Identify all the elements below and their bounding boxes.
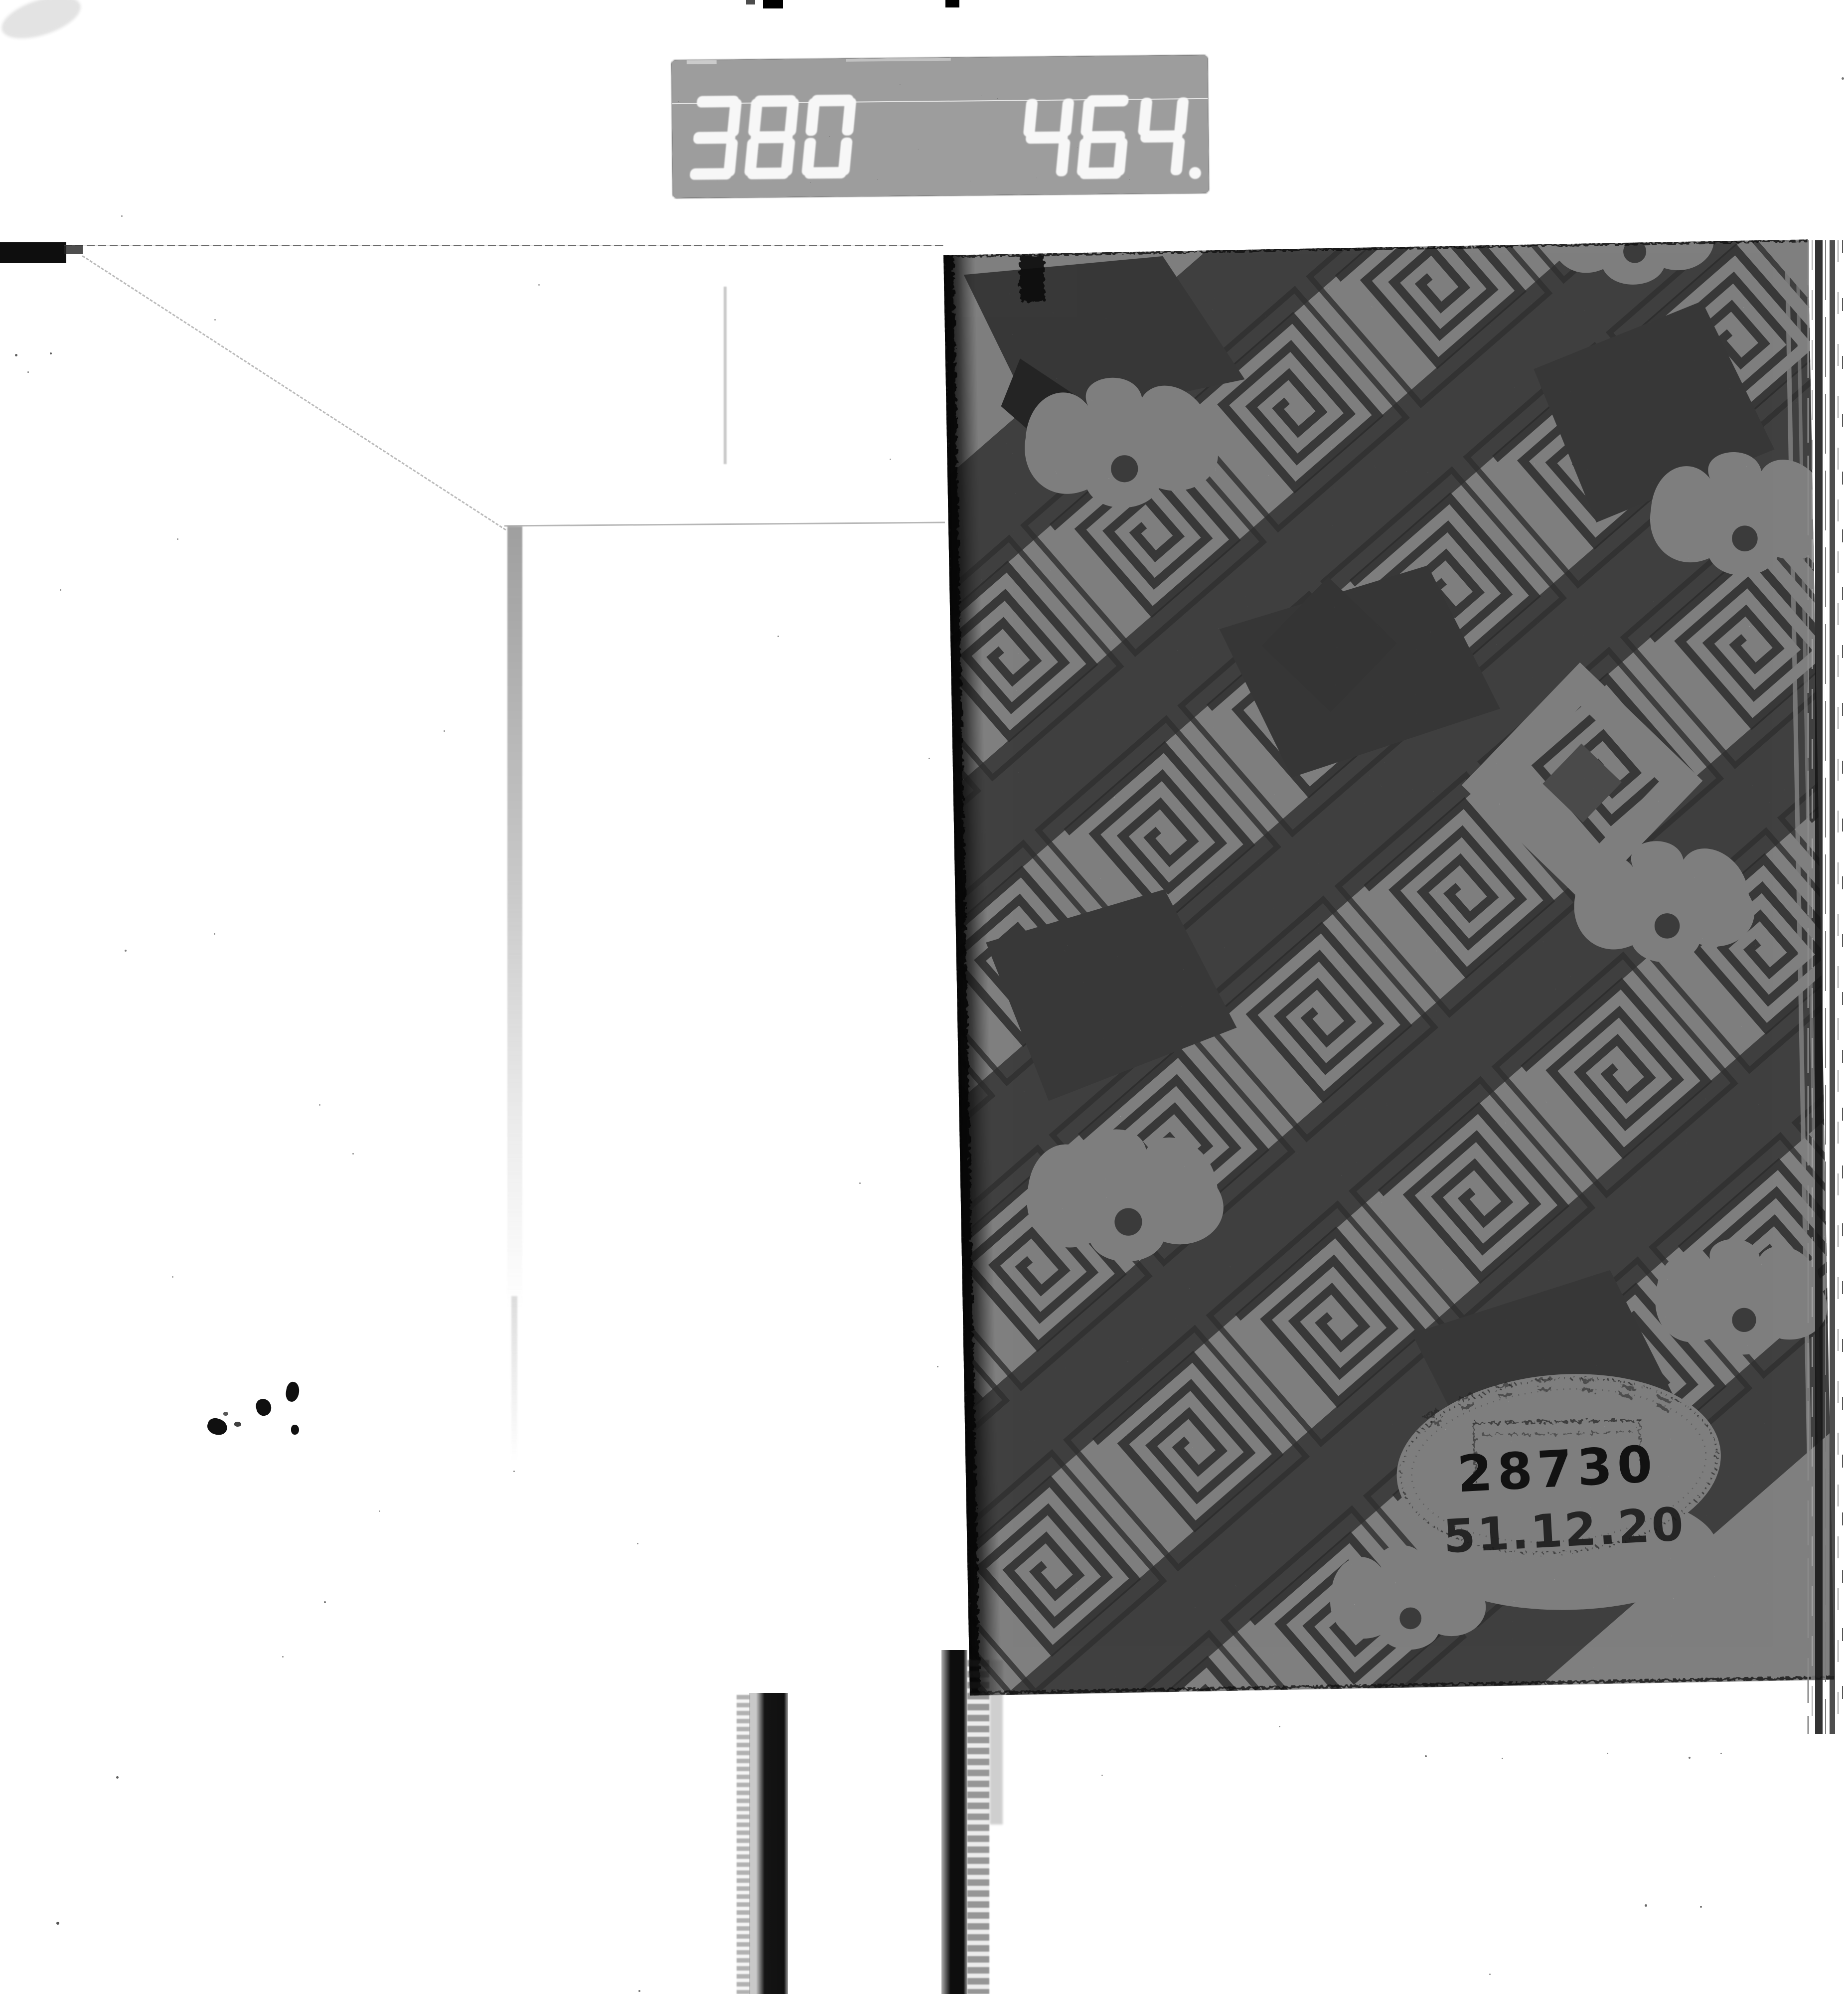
dust-speck — [15, 354, 17, 356]
counter-grain — [672, 55, 1209, 198]
page-top-edge-line — [64, 245, 944, 246]
dust-speck — [116, 1776, 119, 1779]
ink-blot — [223, 1412, 228, 1416]
spine-bar — [941, 1650, 967, 1994]
page-ghost-edge-horizontal — [504, 522, 945, 527]
dust-speck — [859, 1182, 861, 1184]
page-ghost-edge-vertical — [507, 526, 522, 1309]
dust-speck — [1700, 1906, 1702, 1908]
dust-speck — [890, 459, 891, 460]
lower-bar-fuzz — [737, 1695, 750, 1994]
spine-bar-haze — [990, 1660, 1003, 1825]
dust-speck — [27, 371, 29, 373]
ink-blot — [234, 1422, 241, 1427]
scan-grain — [943, 239, 1835, 1695]
dust-speck — [177, 538, 178, 540]
dust-speck — [444, 730, 445, 732]
scanned-sheet: 28730 51.12.20 — [0, 0, 1848, 1994]
dust-speck — [125, 950, 127, 952]
dust-speck — [937, 1366, 938, 1367]
dust-speck — [214, 933, 215, 935]
dust-speck — [172, 1276, 173, 1278]
dust-speck — [352, 1153, 354, 1155]
dust-speck — [1279, 1726, 1280, 1727]
page-ghost-edge-vertical-short — [724, 287, 727, 464]
page-ghost-edge-vertical-faint — [511, 1296, 517, 1461]
dust-speck — [379, 1510, 380, 1512]
dust-speck — [1489, 1974, 1491, 1975]
page-corner-mark-step — [64, 245, 83, 254]
ink-blot — [291, 1425, 299, 1435]
dust-speck — [121, 215, 123, 217]
film-frame-counter — [672, 55, 1209, 198]
dust-speck — [513, 1471, 515, 1472]
book-cover-pattern: 28730 51.12.20 — [943, 239, 1835, 1695]
dust-speck — [638, 1990, 640, 1992]
dust-speck — [777, 636, 779, 637]
ink-blot — [205, 1416, 229, 1438]
lower-bar — [749, 1693, 788, 1994]
dust-speck — [1425, 1755, 1427, 1757]
film-sprocket-tab — [763, 0, 783, 8]
film-sprocket-tab — [746, 0, 755, 4]
dust-speck — [60, 589, 61, 591]
dust-speck — [928, 758, 930, 759]
dust-speck — [1842, 77, 1844, 80]
ink-blot-cluster — [0, 0, 1848, 35]
ink-smear — [0, 0, 86, 47]
book-fore-edge — [1805, 240, 1848, 1734]
frame-counter-display — [672, 55, 1209, 198]
dust-speck — [1502, 1758, 1503, 1759]
dust-speck — [637, 1543, 638, 1544]
page-crease-line — [82, 255, 506, 530]
dust-speck — [538, 284, 540, 286]
dust-speck — [214, 319, 216, 321]
page-corner-mark — [0, 242, 66, 263]
dust-speck — [1645, 1904, 1647, 1907]
dust-speck — [282, 1656, 284, 1658]
book-cover: 28730 51.12.20 — [943, 239, 1835, 1695]
dust-speck — [1720, 1753, 1722, 1754]
dust-speck — [50, 352, 52, 354]
dust-speck — [1607, 1753, 1608, 1754]
dust-speck — [319, 1104, 320, 1106]
ink-blot — [254, 1397, 273, 1417]
dust-speck — [56, 1922, 59, 1925]
film-sprocket-tab — [945, 0, 959, 7]
dust-speck — [1689, 1757, 1691, 1759]
spine-bar-fuzz — [967, 1660, 989, 1994]
ink-blot — [285, 1381, 301, 1403]
dust-speck — [1101, 1775, 1103, 1776]
dust-speck — [324, 1601, 326, 1603]
